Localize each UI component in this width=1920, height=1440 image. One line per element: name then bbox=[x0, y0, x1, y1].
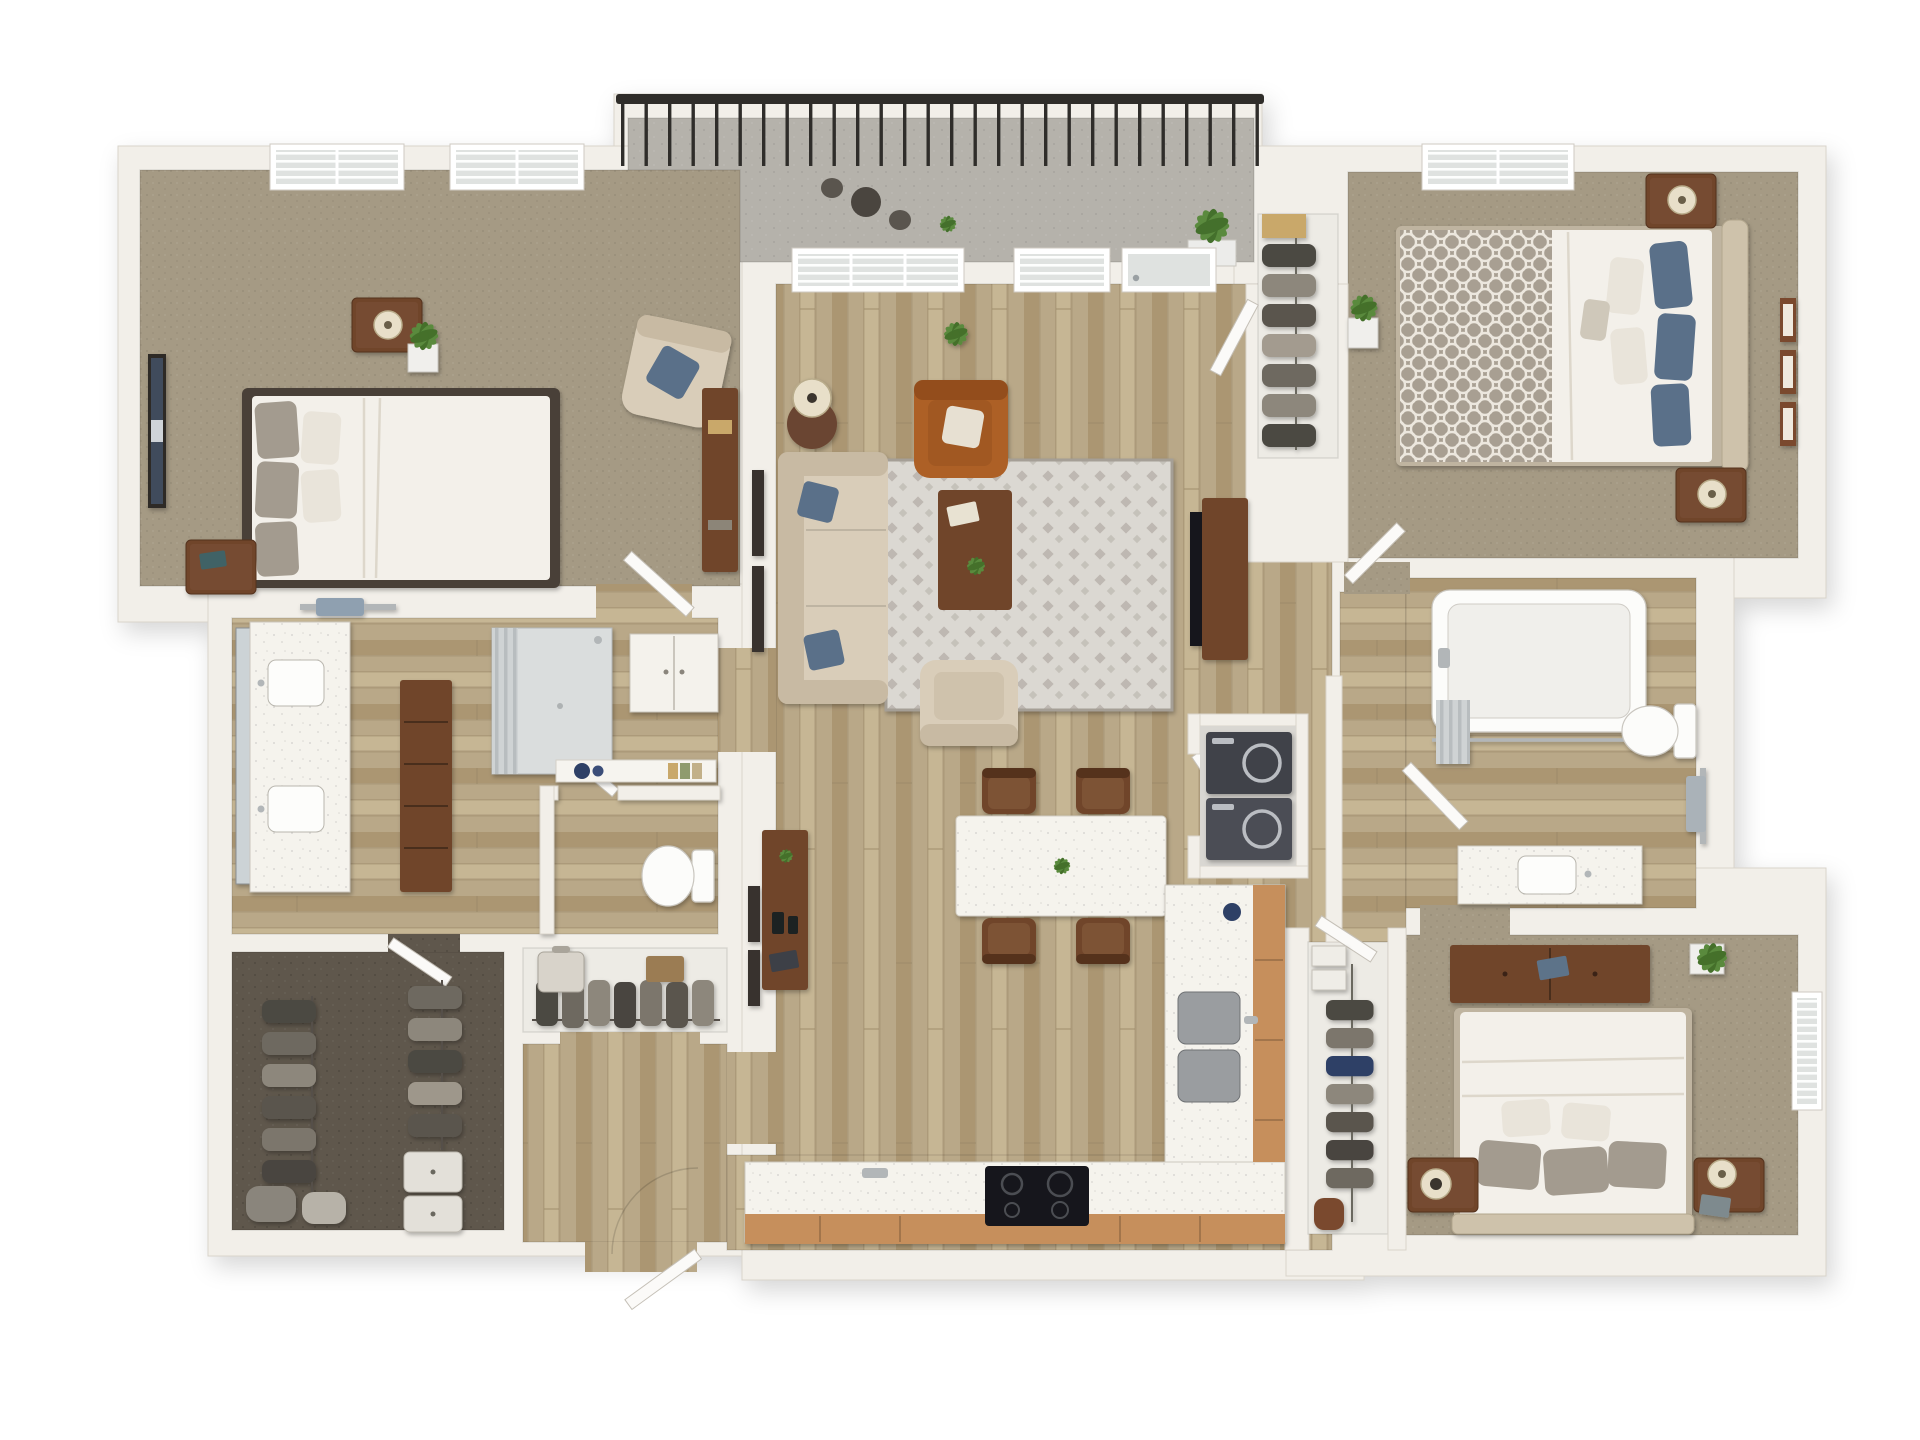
table-lamp bbox=[1708, 1160, 1736, 1188]
linen-cabinet bbox=[630, 634, 718, 712]
living-window-2 bbox=[1014, 248, 1110, 292]
balcony-glass-door bbox=[1122, 248, 1216, 292]
floor-plan-render bbox=[0, 0, 1920, 1440]
toilet bbox=[1622, 704, 1696, 758]
storage-box bbox=[646, 956, 684, 982]
vanity-sink bbox=[1458, 846, 1642, 904]
wall-frame bbox=[748, 886, 760, 942]
railing-top-bar bbox=[616, 94, 1264, 104]
tv-console bbox=[1190, 498, 1248, 660]
queen-bed bbox=[1452, 1008, 1694, 1234]
shoe-box bbox=[1312, 946, 1346, 966]
bedroom3-window bbox=[1792, 992, 1822, 1110]
bath2-corridor-floor bbox=[1340, 592, 1406, 942]
gallery-frames bbox=[1780, 298, 1796, 446]
floor-lamp bbox=[793, 379, 831, 417]
cooktop-range bbox=[985, 1166, 1089, 1226]
queen-bed bbox=[242, 388, 560, 588]
living-to-bath-opening bbox=[718, 648, 776, 752]
closet-shelf-box bbox=[1262, 214, 1306, 238]
trellis-throw bbox=[1400, 230, 1552, 462]
wall-frame bbox=[748, 950, 760, 1006]
bookcase-desk bbox=[702, 388, 738, 572]
table-lamp bbox=[1698, 480, 1726, 508]
counter-sink-run bbox=[1165, 885, 1285, 1162]
sink-faucet bbox=[1244, 1016, 1258, 1024]
coffee-table bbox=[938, 490, 1012, 610]
shower-head bbox=[594, 636, 602, 644]
bedroom2-window bbox=[1422, 144, 1574, 190]
shoe-box bbox=[1312, 970, 1346, 990]
floor-plan-canvas bbox=[0, 0, 1920, 1440]
counter-faucet bbox=[862, 1168, 888, 1178]
dining-chair bbox=[1076, 918, 1130, 964]
dryer bbox=[1206, 798, 1292, 860]
duffel-bag bbox=[1314, 1198, 1344, 1230]
shower-curtain bbox=[492, 628, 518, 774]
bedroom3-door-opening bbox=[1420, 905, 1510, 937]
gray-towel bbox=[1686, 776, 1706, 832]
accent-armchair bbox=[920, 660, 1018, 746]
corridor-west-wall bbox=[1326, 676, 1342, 942]
blue-jar bbox=[574, 763, 590, 779]
table-lamp bbox=[1668, 186, 1696, 214]
nightstand bbox=[186, 540, 256, 594]
double-vanity bbox=[250, 622, 350, 892]
round-lamp bbox=[1421, 1169, 1451, 1199]
laptop bbox=[1699, 1194, 1731, 1218]
living-window-1 bbox=[792, 248, 964, 292]
laundry-closet bbox=[1188, 714, 1308, 878]
sectional-sofa bbox=[778, 452, 888, 704]
suitcase bbox=[538, 946, 584, 992]
bedroom1-window-1 bbox=[270, 144, 404, 190]
dining-chair bbox=[1076, 768, 1130, 814]
bedroom1-window-2 bbox=[450, 144, 584, 190]
tub-faucet bbox=[1438, 648, 1450, 668]
entry-floor bbox=[523, 1044, 727, 1242]
bedroom3-closet-east-wall bbox=[1388, 928, 1406, 1250]
washer bbox=[1206, 732, 1292, 794]
tall-dresser bbox=[400, 680, 452, 892]
flat-tv bbox=[1190, 512, 1202, 646]
entry-passage bbox=[727, 1052, 777, 1144]
coat-closet-opening bbox=[560, 1032, 700, 1046]
table-lamp bbox=[374, 311, 402, 339]
wall-frame bbox=[752, 566, 764, 652]
wall-frame bbox=[752, 470, 764, 556]
blue-kettle bbox=[1223, 903, 1241, 921]
upholstered-headboard bbox=[1722, 220, 1748, 472]
leather-armchair bbox=[914, 380, 1008, 478]
queen-bed bbox=[1396, 220, 1748, 472]
toilet bbox=[642, 846, 714, 906]
walk-in-shower bbox=[492, 628, 612, 774]
blue-jar bbox=[593, 766, 604, 777]
storage-bins bbox=[404, 1152, 462, 1232]
counter-bottom-run bbox=[745, 1162, 1285, 1244]
bunched-curtain bbox=[1436, 700, 1470, 764]
vanity-mirror bbox=[236, 628, 250, 884]
planter bbox=[1348, 318, 1378, 348]
wide-dresser bbox=[1450, 945, 1650, 1003]
dining-chair bbox=[982, 918, 1036, 964]
dining-chair bbox=[982, 768, 1036, 814]
upholstered-headboard bbox=[1452, 1214, 1694, 1234]
wall-art bbox=[148, 354, 166, 508]
bedroom3-closet-west-wall bbox=[1285, 928, 1309, 1250]
blue-towel bbox=[316, 598, 364, 616]
railing-posts bbox=[620, 104, 1260, 166]
